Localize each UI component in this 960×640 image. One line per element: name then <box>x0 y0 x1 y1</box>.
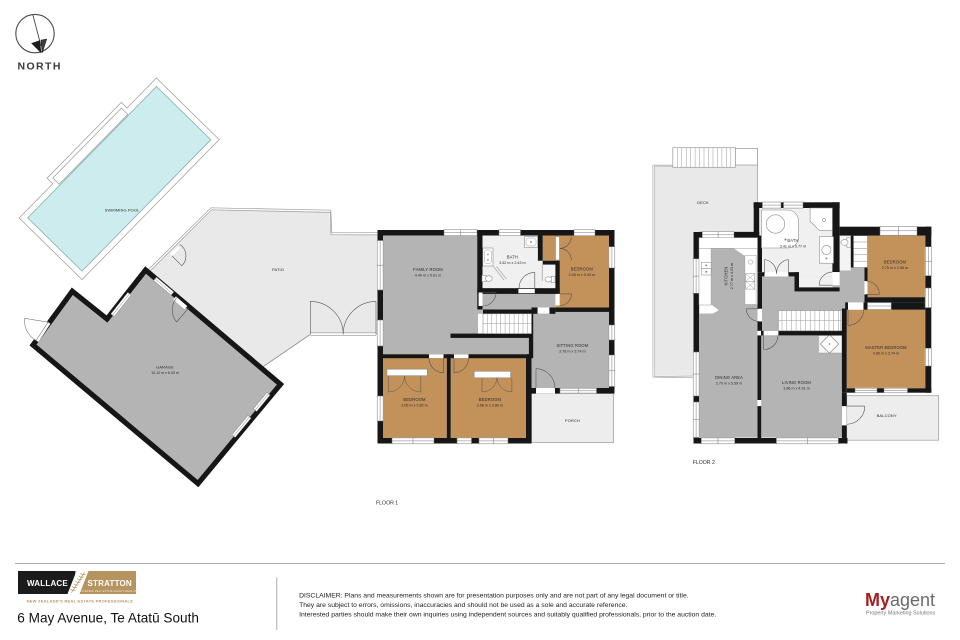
svg-text:2.77 m x 4.03 m: 2.77 m x 4.03 m <box>730 263 734 289</box>
svg-text:PORCH: PORCH <box>565 418 580 423</box>
svg-text:WALLACE: WALLACE <box>27 579 68 588</box>
svg-text:BEDROOM: BEDROOM <box>571 267 594 272</box>
svg-text:Myagent: Myagent <box>865 590 935 610</box>
svg-text:3.78 m x 3.74 m: 3.78 m x 3.74 m <box>559 350 585 354</box>
svg-text:BALCONY: BALCONY <box>877 413 897 418</box>
svg-text:SITTING ROOM: SITTING ROOM <box>556 343 588 348</box>
svg-text:NORTH: NORTH <box>18 61 62 73</box>
svg-text:3.86 m x 4.91 m: 3.86 m x 4.91 m <box>783 387 809 391</box>
svg-text:Property Marketing Solutions: Property Marketing Solutions <box>866 611 936 617</box>
svg-text:2.75 m x 2.96 m: 2.75 m x 2.96 m <box>882 266 908 270</box>
svg-text:2.70 m x 5.59 m: 2.70 m x 5.59 m <box>716 382 742 386</box>
svg-text:4.49 m x 5.61 m: 4.49 m x 5.61 m <box>415 274 441 278</box>
svg-text:BATH: BATH <box>787 238 798 243</box>
svg-text:BATH: BATH <box>507 255 518 260</box>
svg-text:BEDROOM: BEDROOM <box>403 397 426 402</box>
svg-text:LIVING ROOM: LIVING ROOM <box>782 380 811 385</box>
svg-text:FLOOR 2: FLOOR 2 <box>693 460 715 466</box>
svg-text:NEW ZEALAND'S REAL ESTATE PROF: NEW ZEALAND'S REAL ESTATE PROFESSIONALS <box>27 598 134 603</box>
svg-text:FLOOR 1: FLOOR 1 <box>376 501 398 507</box>
svg-text:MASTER BEDROOM: MASTER BEDROOM <box>865 345 907 350</box>
svg-text:BEDROOM: BEDROOM <box>884 260 907 265</box>
svg-text:LICENSED REAL ESTATE AGENTS RE: LICENSED REAL ESTATE AGENTS REAA 2008 <box>80 590 140 593</box>
svg-text:DISCLAIMER: Plans and measurem: DISCLAIMER: Plans and measurements shown… <box>299 593 689 600</box>
svg-text:6 May Avenue, Te Atatū South: 6 May Avenue, Te Atatū South <box>17 611 199 626</box>
svg-text:DECK: DECK <box>697 200 709 205</box>
svg-text:GARAGE: GARAGE <box>156 365 174 370</box>
svg-text:STRATTON: STRATTON <box>88 579 132 588</box>
svg-text:PATIO: PATIO <box>272 267 284 272</box>
svg-text:3.05 m x 3.85 m: 3.05 m x 3.85 m <box>401 404 427 408</box>
svg-text:They are subject to errors, om: They are subject to errors, omissions, i… <box>299 602 627 609</box>
svg-text:10.12 m x 6.03 m: 10.12 m x 6.03 m <box>151 371 179 375</box>
svg-text:KITCHEN: KITCHEN <box>724 266 729 285</box>
svg-text:FAMILY ROOM: FAMILY ROOM <box>413 267 443 272</box>
svg-text:DINING AREA: DINING AREA <box>715 375 743 380</box>
svg-text:3.58 m x 3.86 m: 3.58 m x 3.86 m <box>477 404 503 408</box>
svg-text:3.52 m x 2.43 m: 3.52 m x 2.43 m <box>499 261 525 265</box>
svg-text:Interested parties should make: Interested parties should make their own… <box>299 611 716 618</box>
svg-text:2.45 m x 3.43 m: 2.45 m x 3.43 m <box>569 273 595 277</box>
svg-text:3.89 m x 3.74 m: 3.89 m x 3.74 m <box>873 352 899 356</box>
svg-text:3.41 m x 3.77 m: 3.41 m x 3.77 m <box>780 245 806 249</box>
svg-text:SWIMMING POOL: SWIMMING POOL <box>105 208 141 213</box>
svg-text:BEDROOM: BEDROOM <box>479 397 502 402</box>
